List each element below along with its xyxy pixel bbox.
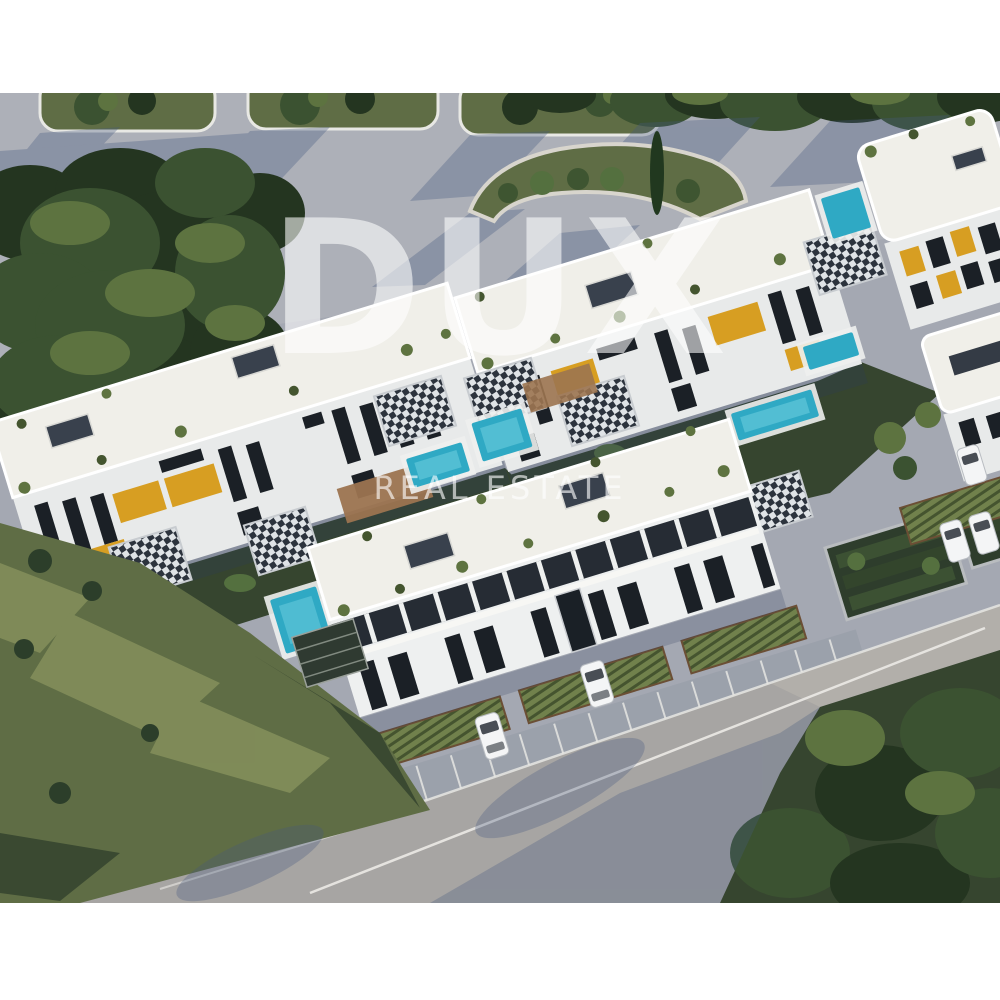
real-estate-aerial-render: DUX REAL ESTATE [0, 0, 1000, 1000]
aerial-photo [0, 93, 1000, 903]
top-white-margin [0, 0, 1000, 93]
bottom-white-margin [0, 903, 1000, 1000]
cypress-tree [650, 131, 664, 215]
